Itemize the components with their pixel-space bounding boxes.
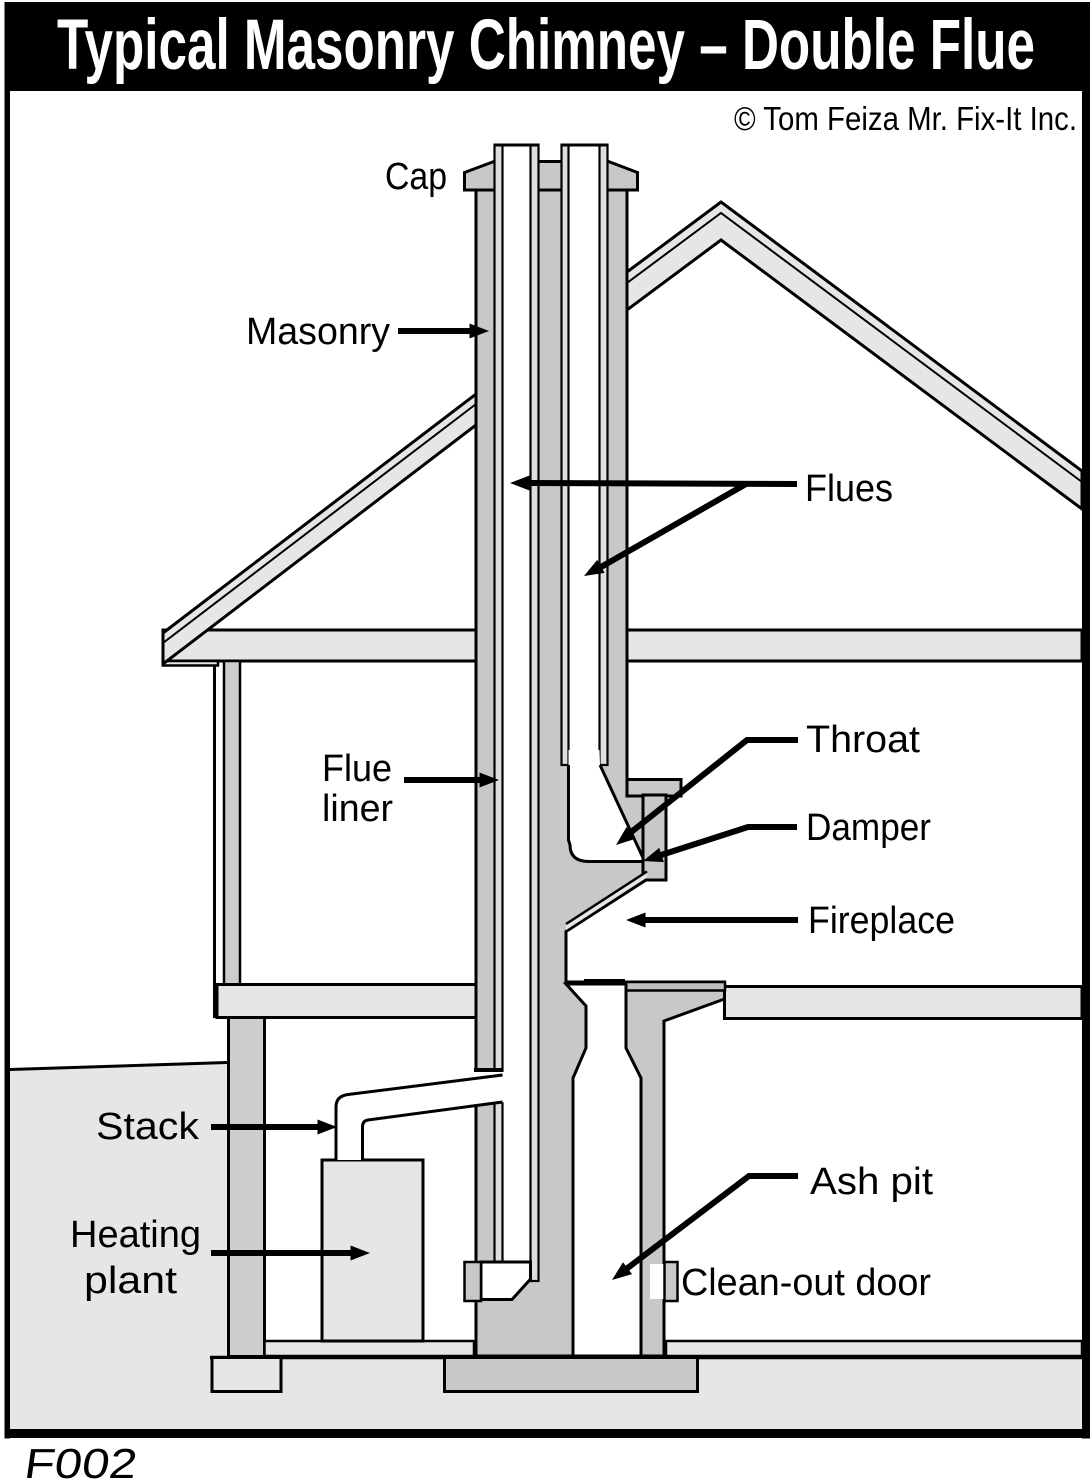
svg-text:Throat: Throat <box>806 719 920 761</box>
svg-text:Typical Masonry Chimney – Doub: Typical Masonry Chimney – Double Flue <box>57 6 1035 85</box>
svg-text:Stack: Stack <box>96 1106 200 1148</box>
svg-text:Cap: Cap <box>385 156 447 198</box>
svg-text:F002: F002 <box>22 1440 141 1483</box>
svg-text:Damper: Damper <box>806 807 931 849</box>
svg-text:liner: liner <box>322 788 393 830</box>
svg-text:Flue: Flue <box>322 748 392 790</box>
svg-text:© Tom Feiza Mr. Fix-It Inc.: © Tom Feiza Mr. Fix-It Inc. <box>734 100 1077 137</box>
svg-text:Ash pit: Ash pit <box>810 1161 933 1203</box>
svg-text:Masonry: Masonry <box>246 311 390 353</box>
svg-text:Clean-out door: Clean-out door <box>681 1262 931 1304</box>
svg-text:plant: plant <box>84 1260 177 1302</box>
svg-text:Flues: Flues <box>805 468 893 510</box>
svg-text:Heating: Heating <box>70 1214 201 1256</box>
svg-text:Fireplace: Fireplace <box>808 900 955 942</box>
